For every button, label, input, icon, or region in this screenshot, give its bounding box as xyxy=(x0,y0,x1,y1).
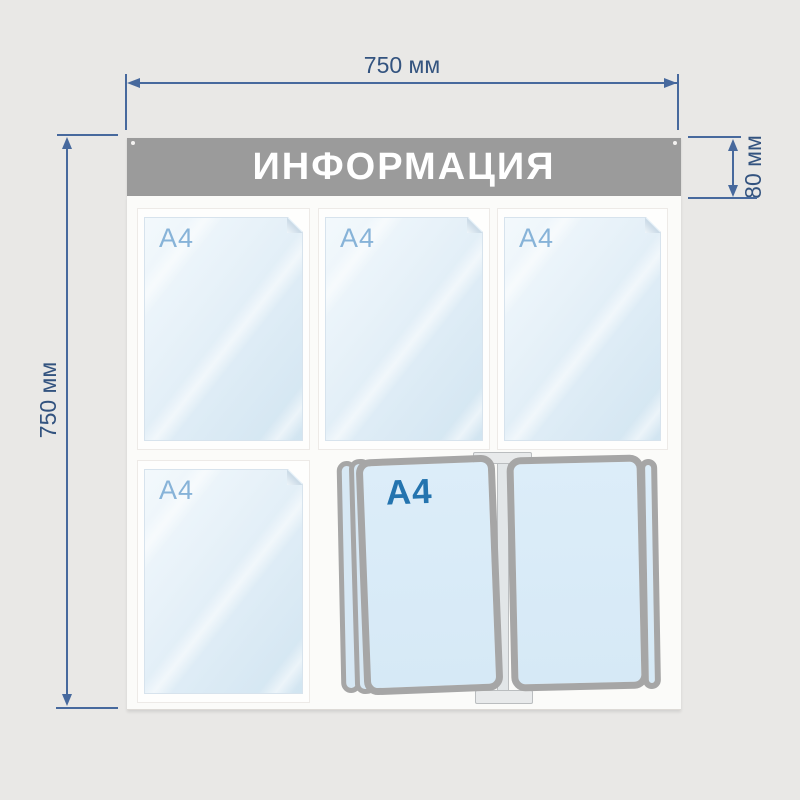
width-dimension-line xyxy=(131,82,677,84)
height-dimension-label: 750 мм xyxy=(35,328,61,472)
pocket-size-label: A4 xyxy=(159,475,194,506)
flip-hinge-cap-bottom xyxy=(475,690,533,704)
pocket-size-label: A4 xyxy=(519,223,554,254)
height-dimension-line xyxy=(66,141,68,703)
pocket-cell: A4 xyxy=(137,460,310,703)
extension-line-right xyxy=(677,74,679,130)
arrowhead-left-icon xyxy=(127,78,140,88)
mounting-hole-icon xyxy=(673,141,677,145)
pocket-folded-corner xyxy=(645,218,660,233)
extension-line-left xyxy=(125,74,127,130)
tick-header-bottom xyxy=(688,197,757,199)
tick-header-top xyxy=(688,136,741,138)
pocket-cell: A4 xyxy=(497,208,668,450)
arrowhead-up-small-icon xyxy=(728,139,738,151)
tick-top xyxy=(57,134,118,136)
arrowhead-right-icon xyxy=(664,78,677,88)
pocket-folded-corner xyxy=(287,218,302,233)
arrowhead-down-small-icon xyxy=(728,185,738,197)
pocket-folded-corner xyxy=(287,470,302,485)
stand-header: ИНФОРМАЦИЯ xyxy=(127,138,681,196)
pocket-cell: A4 xyxy=(137,208,310,450)
stand-title: ИНФОРМАЦИЯ xyxy=(127,138,681,196)
flip-page-left: A4 xyxy=(356,454,504,695)
stand-board: A4 A4 A4 A4 xyxy=(127,196,681,710)
a4-flat-pocket: A4 xyxy=(325,217,483,441)
pocket-cell: A4 xyxy=(318,208,490,450)
product-diagram: 750 мм 750 мм 80 мм ИНФОРМАЦИЯ A4 A4 xyxy=(0,0,800,800)
flip-pocket-system: A4 xyxy=(335,450,661,708)
width-dimension-label: 750 мм xyxy=(330,52,474,78)
pocket-size-label: A4 xyxy=(159,223,194,254)
tick-bottom xyxy=(56,707,118,709)
flip-page-right xyxy=(506,454,648,691)
a4-flat-pocket: A4 xyxy=(144,217,303,441)
arrowhead-up-icon xyxy=(62,137,72,149)
arrowhead-down-icon xyxy=(62,694,72,706)
flip-pocket-size-label: A4 xyxy=(385,472,433,514)
mounting-hole-icon xyxy=(131,141,135,145)
pocket-size-label: A4 xyxy=(340,223,375,254)
header-height-dimension-label: 80 мм xyxy=(740,117,766,217)
pocket-folded-corner xyxy=(467,218,482,233)
a4-flat-pocket: A4 xyxy=(504,217,661,441)
a4-flat-pocket: A4 xyxy=(144,469,303,694)
